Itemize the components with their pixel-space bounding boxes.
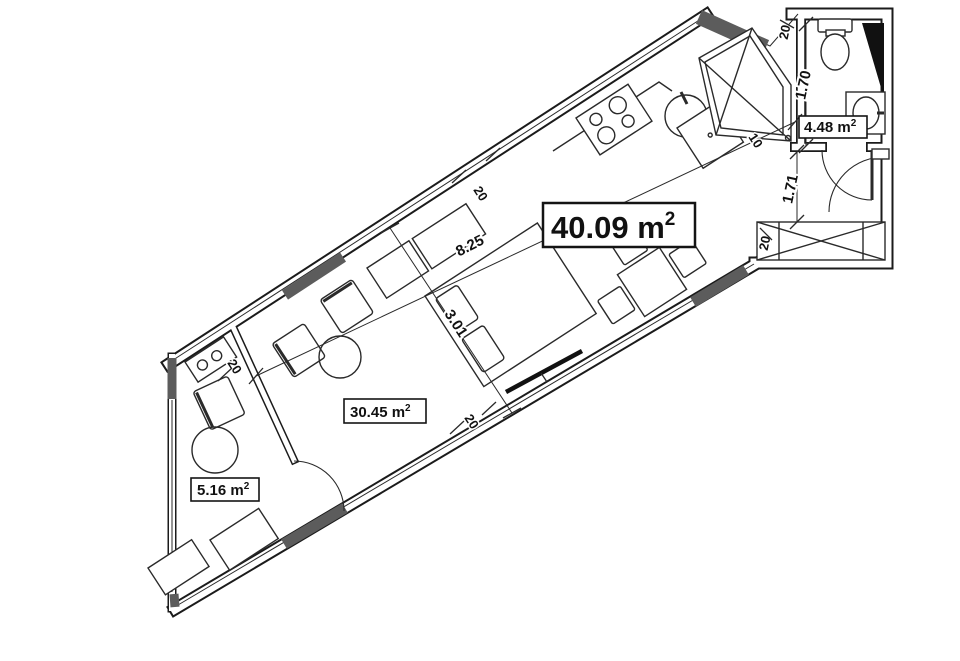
- dim-bathroom-width: 1.70: [792, 69, 815, 101]
- floor-plan: 8.25 3.01 1.70 1.71 20 20 20 20 20 10 40…: [0, 0, 960, 661]
- area-label-bathroom: 4.48 m2: [799, 116, 867, 138]
- pier-diagonal-upper: [693, 270, 746, 302]
- hall-wardrobe: [757, 222, 885, 260]
- dim-wall-20: 20: [471, 183, 491, 203]
- balcony-door: [294, 461, 344, 511]
- pier-left-bottom: [174, 594, 175, 607]
- area-label-balcony: 5.16 m2: [191, 478, 259, 501]
- bathroom-area-text: 4.48 m2: [804, 118, 857, 136]
- armchair: [320, 279, 374, 333]
- dim-wall-20: 20: [756, 234, 774, 251]
- pier-diagonal-lower: [284, 508, 345, 544]
- balcony-area-text: 5.16 m2: [197, 481, 250, 499]
- total-area-text: 40.09 m2: [551, 209, 675, 245]
- armchair: [193, 376, 245, 430]
- toilet-icon: [818, 19, 852, 70]
- armchair: [272, 323, 326, 377]
- living-area-text: 30.45 m2: [350, 403, 411, 421]
- entrance-door: [829, 149, 889, 212]
- area-label-living: 30.45 m2: [344, 399, 426, 423]
- radiator-panel: [862, 23, 884, 98]
- entrance-door-leaf: [872, 149, 889, 159]
- area-label-total: 40.09 m2: [543, 203, 695, 247]
- dim-hall-width: 1.71: [779, 173, 802, 205]
- round-table: [319, 336, 361, 378]
- bathroom-door: [822, 150, 872, 200]
- bench: [148, 540, 209, 595]
- round-table: [192, 427, 238, 473]
- floor-plan-canvas: 8.25 3.01 1.70 1.71 20 20 20 20 20 10 40…: [0, 0, 960, 661]
- dimension-hall: 1.71: [779, 145, 804, 229]
